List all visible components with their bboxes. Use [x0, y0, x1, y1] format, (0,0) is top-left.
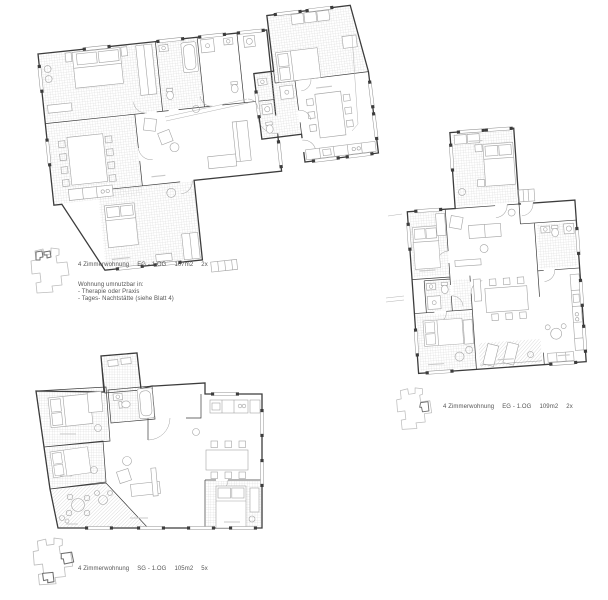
dining-table [485, 286, 529, 313]
sofa [468, 223, 501, 238]
double-bed [423, 318, 464, 346]
double-bed [483, 142, 516, 186]
site-key-plan-top [28, 246, 76, 298]
kitchen-counter [542, 274, 585, 362]
toilet [231, 81, 239, 93]
nightstand [477, 179, 484, 186]
wardrobe [291, 13, 304, 24]
wardrobe [87, 391, 103, 412]
toilet [441, 282, 449, 294]
double-bed [72, 47, 124, 88]
apartment-summary-line: 4 ZimmerwohnungSG - 1.OG105m25x [78, 566, 216, 573]
armchair [449, 215, 463, 229]
site-key-plan-bottom [30, 536, 80, 590]
coffee-table [170, 142, 180, 152]
shelf [108, 360, 118, 367]
apartment-floors: SG - 1.OG [137, 566, 166, 572]
dining-table [315, 91, 346, 138]
bathtub [137, 388, 155, 419]
armchair [116, 468, 131, 483]
sink [541, 226, 550, 233]
shelf [121, 358, 131, 365]
floor-plan-bottom [36, 353, 264, 530]
table [550, 328, 562, 340]
plant [508, 209, 515, 216]
plant [193, 429, 200, 436]
shower [200, 39, 214, 53]
apartment-floors: EG - 1.OG [502, 404, 531, 410]
bathtub [181, 41, 199, 72]
plan-label-right: 4 ZimmerwohnungEG - 1.OG109m22x [443, 404, 581, 411]
wardrobe [454, 135, 467, 145]
apartment-summary-line: 4 ZimmerwohnungEG - 1.OG107m22x [78, 262, 216, 269]
nightstand [121, 47, 128, 57]
dining-table [206, 450, 248, 470]
shower [280, 85, 294, 99]
corridor-floor [452, 279, 472, 310]
apartment-type: 4 Zimmerwohnung [78, 566, 129, 572]
dining-table [67, 134, 108, 186]
toilet [119, 401, 131, 409]
wardrobe [317, 10, 330, 21]
conversion-notes: Wohnung umnutzbar in: - Therapie oder Pr… [78, 282, 216, 303]
apartment-type: 4 Zimmerwohnung [78, 262, 129, 268]
note-line: - Therapie oder Praxis [78, 289, 216, 296]
double-bed [104, 203, 138, 248]
wardrobe [436, 213, 447, 236]
entry-step [518, 189, 535, 202]
kitchen-counter [210, 400, 260, 413]
washing-machine [564, 223, 575, 234]
bench [156, 253, 173, 262]
apartment-count: 2x [201, 262, 208, 268]
double-bed [275, 48, 320, 83]
note-line: Wohnung umnutzbar in: [78, 282, 216, 289]
apartment-type: 4 Zimmerwohnung [443, 404, 494, 410]
sideboard [473, 279, 482, 301]
plan-right-context [386, 214, 404, 302]
nightstand [475, 144, 482, 151]
armchair [143, 118, 156, 131]
apartment-area: 105m2 [174, 566, 193, 572]
plan-label-top: 4 ZimmerwohnungEG - 1.OG107m22x Wohnung … [78, 262, 216, 303]
chair [561, 324, 566, 329]
chair [545, 325, 550, 330]
coffee-table [480, 244, 489, 253]
toilet [166, 88, 174, 100]
sideboard [455, 259, 481, 267]
unit-b [245, 2, 380, 168]
sink [258, 78, 268, 86]
site-key-plan-right [393, 386, 439, 434]
highlighted-unit [36, 251, 43, 260]
note-line: - Tages- Nachtstätte (siehe Blatt 4) [78, 296, 216, 303]
sink [159, 44, 169, 51]
architectural-sheet: 4 ZimmerwohnungEG - 1.OG107m22x Wohnung … [0, 0, 608, 600]
wardrobe [463, 320, 474, 345]
double-bed [48, 394, 93, 428]
highlighted-unit [420, 402, 429, 412]
sink [223, 38, 233, 45]
dresser [342, 35, 357, 49]
washing-machine [262, 104, 273, 115]
apartment-floors: EG - 1.OG [137, 262, 166, 268]
sideboard [208, 154, 237, 169]
apartment-area: 109m2 [539, 404, 558, 410]
nightstand [65, 53, 72, 63]
sink [113, 393, 123, 400]
wardrobe [250, 488, 259, 512]
floor-plan-top [36, 2, 380, 288]
plan-label-bottom: 4 ZimmerwohnungSG - 1.OG105m25x [78, 566, 216, 573]
apartment-area: 107m2 [174, 262, 193, 268]
toilet [551, 225, 559, 237]
wardrobe [304, 12, 317, 23]
armchair [158, 129, 174, 145]
wardrobe [467, 134, 480, 144]
sink [426, 283, 435, 290]
floor-plan-right [400, 123, 588, 376]
shower [427, 296, 441, 310]
apartment-summary-line: 4 ZimmerwohnungEG - 1.OG109m22x [443, 404, 581, 411]
double-bed [50, 447, 91, 478]
washing-machine [243, 35, 255, 47]
double-bed [412, 226, 440, 270]
coffee-table [123, 457, 132, 466]
apartment-count: 5x [201, 566, 208, 572]
apartment-count: 2x [566, 404, 573, 410]
highlighted-unit [43, 572, 54, 582]
wardrobe [182, 232, 201, 260]
